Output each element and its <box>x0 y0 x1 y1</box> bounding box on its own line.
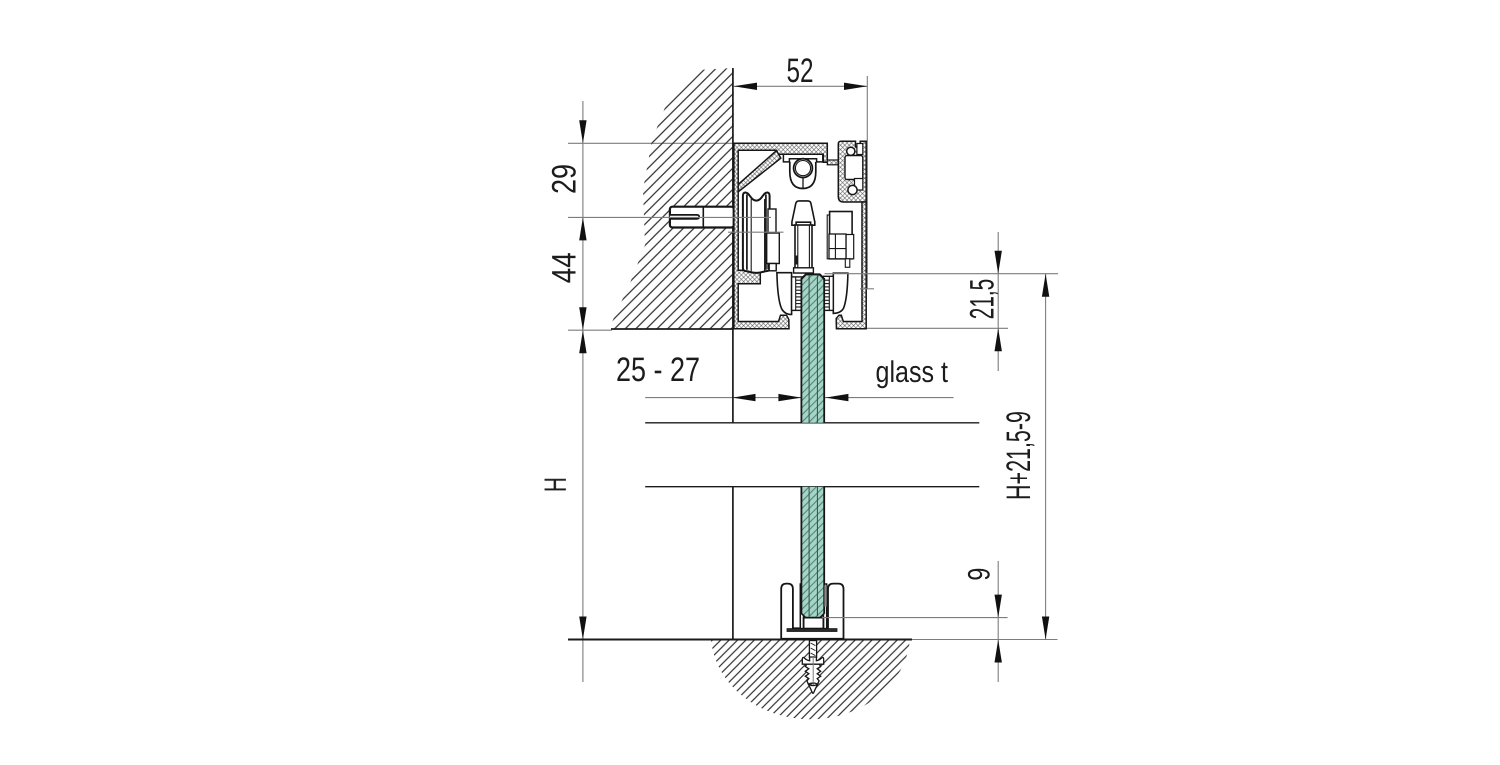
svg-text:21,5: 21,5 <box>964 279 1002 320</box>
svg-text:9: 9 <box>962 568 997 581</box>
svg-text:25 - 27: 25 - 27 <box>616 351 700 389</box>
svg-text:H: H <box>538 477 573 492</box>
svg-text:glass t: glass t <box>876 356 949 389</box>
svg-text:52: 52 <box>787 52 814 90</box>
svg-text:44: 44 <box>546 252 584 283</box>
svg-text:H+21,5-9: H+21,5-9 <box>1000 411 1038 500</box>
svg-text:29: 29 <box>546 164 584 194</box>
